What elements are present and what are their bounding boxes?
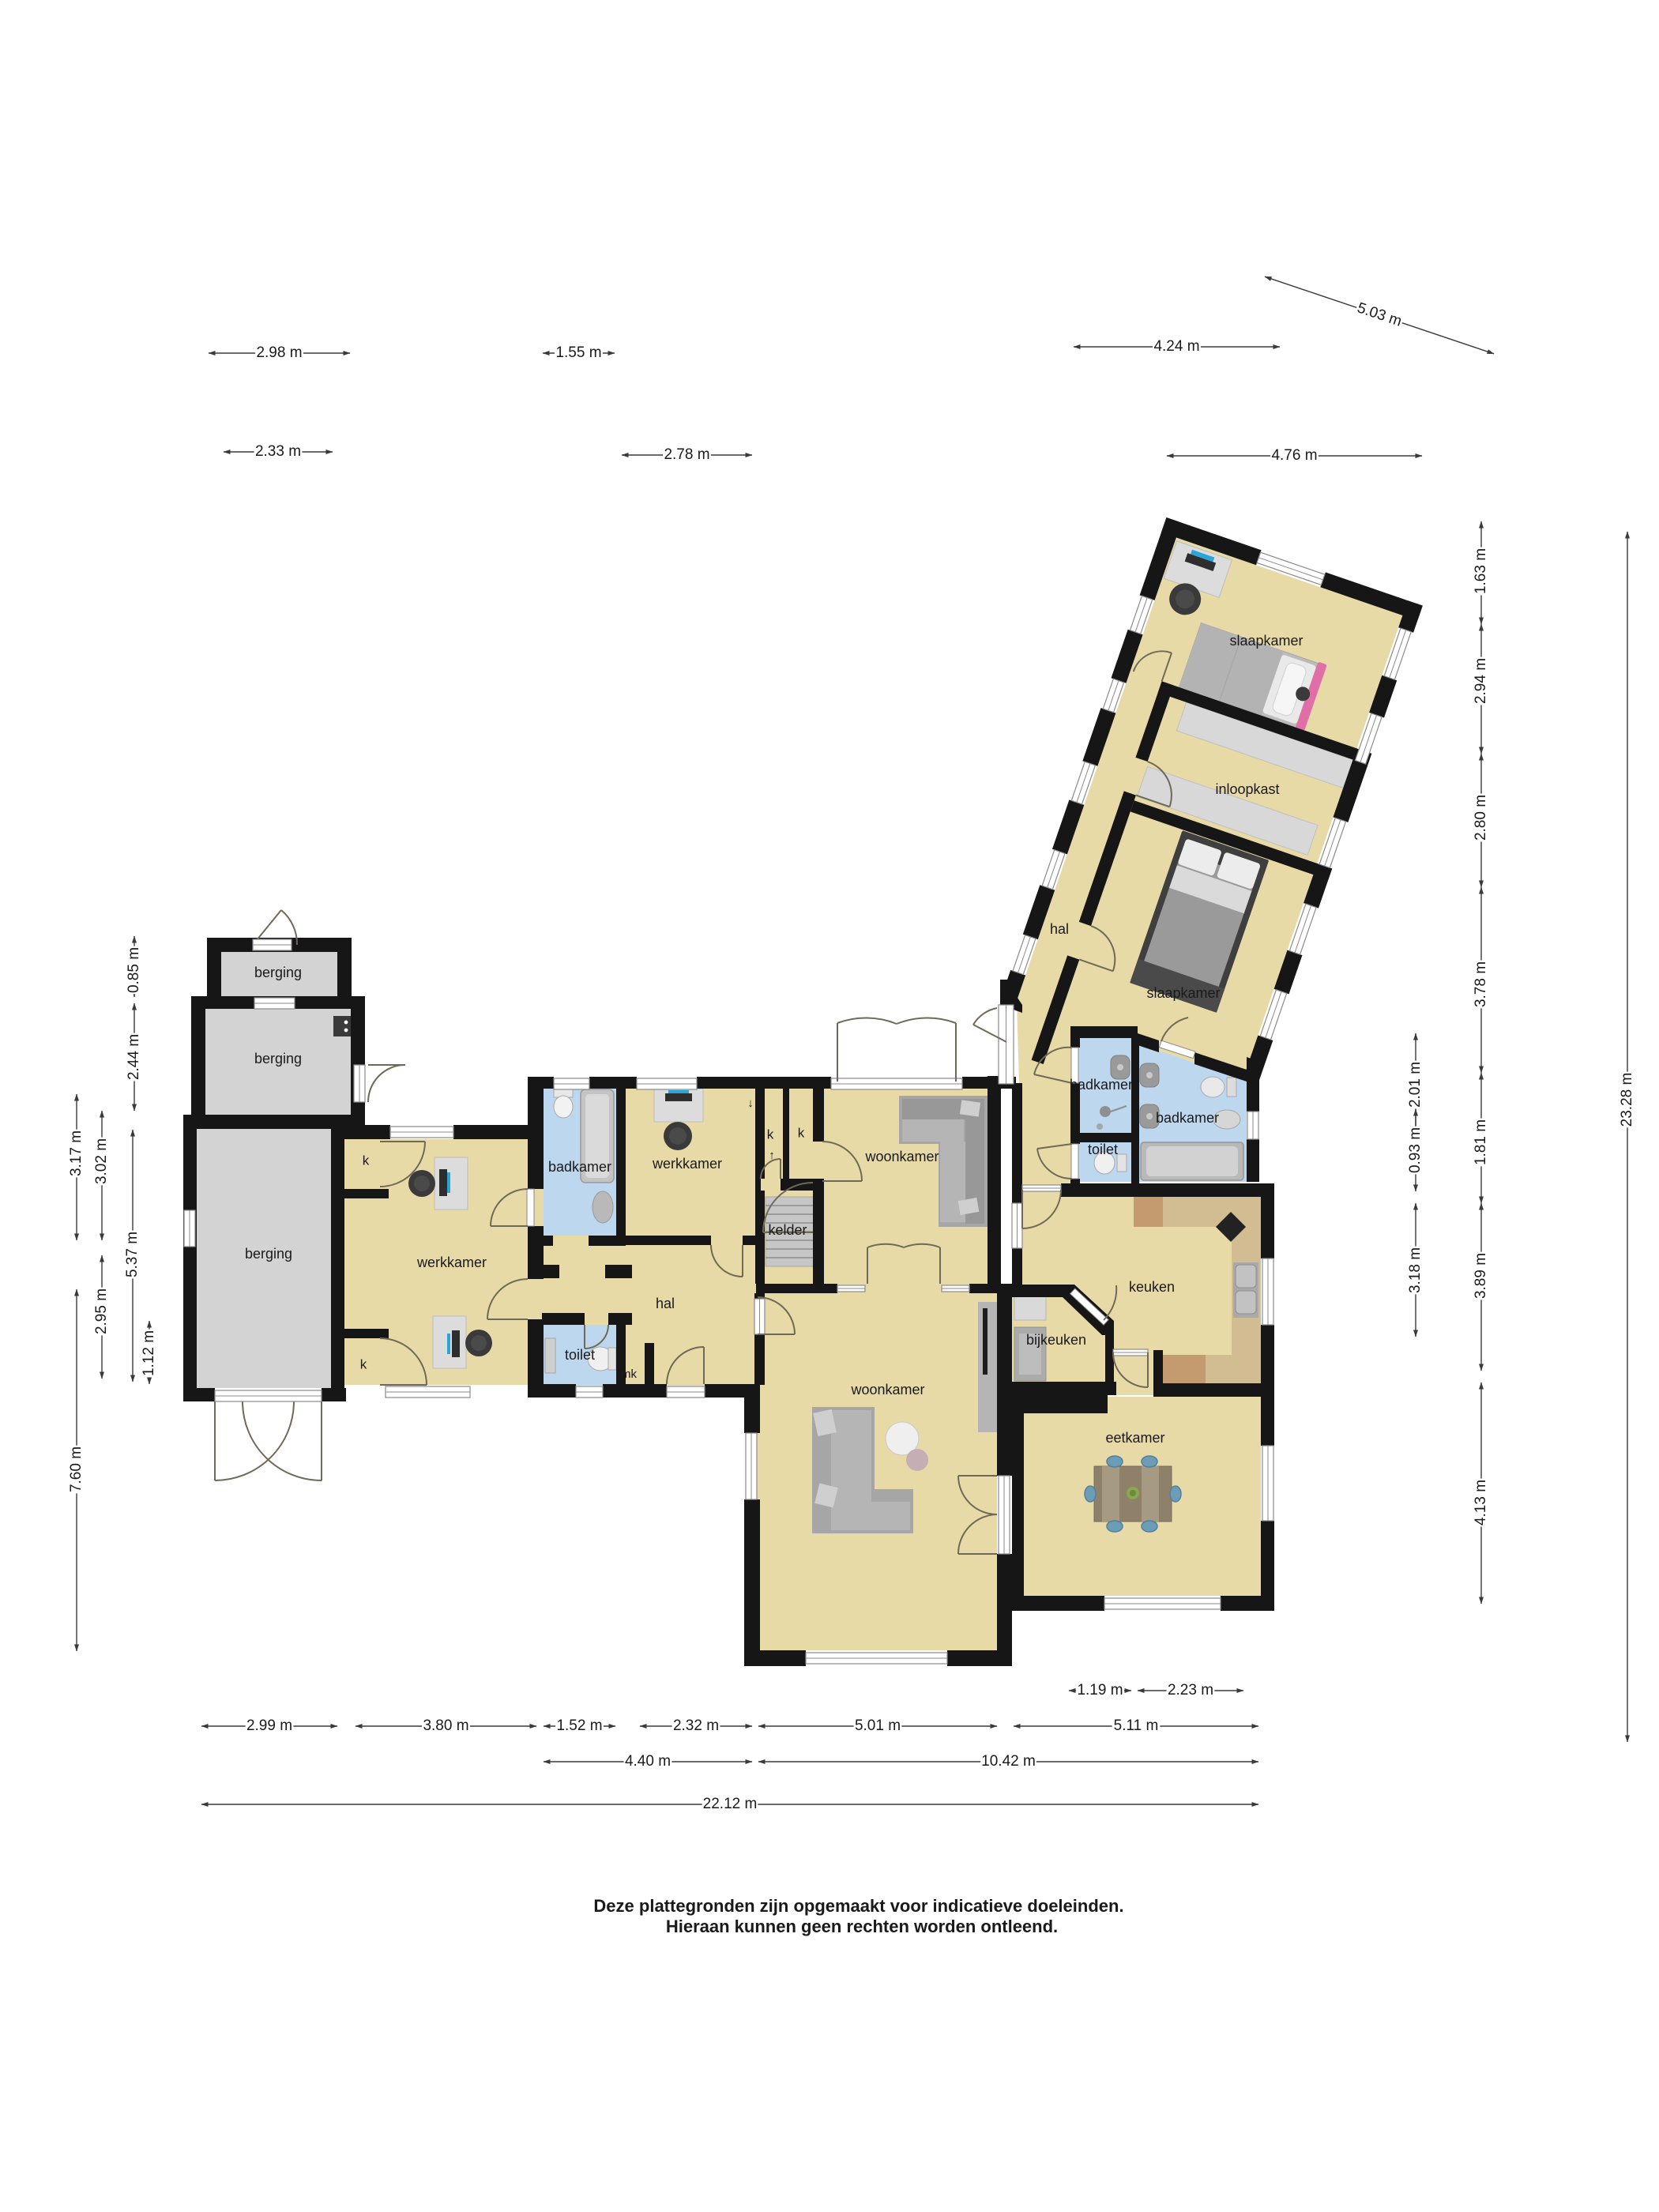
svg-text:inloopkast: inloopkast [1215, 781, 1279, 797]
svg-text:2.44 m: 2.44 m [126, 1034, 142, 1080]
svg-text:k: k [360, 1356, 367, 1371]
svg-text:badkamer: badkamer [1156, 1110, 1219, 1126]
svg-text:3.18 m: 3.18 m [1407, 1247, 1424, 1293]
svg-text:3.02 m: 3.02 m [93, 1138, 110, 1184]
svg-text:2.94 m: 2.94 m [1473, 658, 1489, 704]
svg-text:werkkamer: werkkamer [652, 1156, 722, 1172]
svg-text:badkamer: badkamer [548, 1159, 611, 1175]
svg-text:k: k [767, 1127, 774, 1142]
svg-text:k: k [363, 1153, 370, 1168]
svg-text:↑: ↑ [769, 1149, 775, 1162]
svg-text:2.98 m: 2.98 m [256, 344, 302, 361]
svg-text:eetkamer: eetkamer [1105, 1430, 1164, 1446]
svg-text:toilet: toilet [565, 1347, 595, 1363]
svg-text:mk: mk [621, 1367, 637, 1381]
svg-text:hal: hal [1050, 921, 1069, 937]
svg-text:1.52 m: 1.52 m [556, 1717, 602, 1734]
svg-text:k: k [798, 1125, 805, 1140]
svg-text:berging: berging [245, 1246, 292, 1262]
svg-text:woonkamer: woonkamer [864, 1149, 939, 1164]
svg-text:2.95 m: 2.95 m [93, 1288, 110, 1334]
svg-text:5.11 m: 5.11 m [1114, 1717, 1159, 1734]
svg-text:1.19 m: 1.19 m [1077, 1682, 1123, 1698]
svg-text:badkamer: badkamer [1070, 1077, 1133, 1093]
svg-text:1.12 m: 1.12 m [141, 1330, 157, 1376]
svg-text:2.33 m: 2.33 m [255, 443, 301, 460]
svg-text:slaapkamer: slaapkamer [1146, 985, 1220, 1001]
svg-text:1.55 m: 1.55 m [555, 344, 601, 361]
svg-text:10.42 m: 10.42 m [981, 1753, 1036, 1770]
svg-text:kelder: kelder [768, 1222, 807, 1238]
svg-text:2.01 m: 2.01 m [1407, 1062, 1424, 1108]
svg-text:Deze plattegronden zijn opgema: Deze plattegronden zijn opgemaakt voor i… [593, 1896, 1123, 1916]
svg-text:23.28 m: 23.28 m [1619, 1073, 1635, 1127]
svg-text:↓: ↓ [747, 1097, 754, 1110]
svg-text:slaapkamer: slaapkamer [1229, 633, 1303, 649]
svg-text:3.80 m: 3.80 m [423, 1717, 468, 1734]
svg-text:1.81 m: 1.81 m [1473, 1119, 1489, 1165]
svg-text:woonkamer: woonkamer [850, 1382, 924, 1398]
svg-text:4.13 m: 4.13 m [1473, 1480, 1489, 1525]
svg-text:1.63 m: 1.63 m [1473, 548, 1489, 594]
svg-text:Hieraan kunnen geen rechten wo: Hieraan kunnen geen rechten worden ontle… [666, 1917, 1058, 1936]
svg-text:22.12 m: 22.12 m [703, 1796, 758, 1812]
svg-text:2.32 m: 2.32 m [673, 1717, 719, 1734]
svg-text:5.01 m: 5.01 m [855, 1717, 901, 1734]
svg-text:2.99 m: 2.99 m [246, 1717, 292, 1734]
svg-text:2.80 m: 2.80 m [1473, 795, 1489, 841]
svg-text:berging: berging [254, 965, 302, 980]
svg-text:2.78 m: 2.78 m [664, 446, 709, 463]
svg-text:4.24 m: 4.24 m [1153, 338, 1199, 355]
svg-text:0.85 m: 0.85 m [126, 947, 142, 993]
svg-text:5.37 m: 5.37 m [124, 1232, 141, 1277]
svg-text:3.78 m: 3.78 m [1473, 961, 1489, 1007]
svg-text:toilet: toilet [1088, 1142, 1118, 1157]
svg-text:berging: berging [254, 1051, 302, 1066]
svg-text:werkkamer: werkkamer [416, 1255, 487, 1270]
svg-text:3.89 m: 3.89 m [1473, 1253, 1489, 1299]
svg-text:hal: hal [656, 1296, 675, 1311]
svg-text:0.93 m: 0.93 m [1407, 1127, 1424, 1173]
svg-text:keuken: keuken [1129, 1279, 1175, 1295]
svg-text:2.23 m: 2.23 m [1168, 1682, 1213, 1698]
svg-text:4.76 m: 4.76 m [1271, 447, 1317, 464]
svg-text:7.60 m: 7.60 m [68, 1446, 85, 1492]
svg-text:3.17 m: 3.17 m [68, 1130, 85, 1176]
svg-text:bijkeuken: bijkeuken [1026, 1332, 1086, 1348]
svg-text:4.40 m: 4.40 m [625, 1753, 671, 1770]
